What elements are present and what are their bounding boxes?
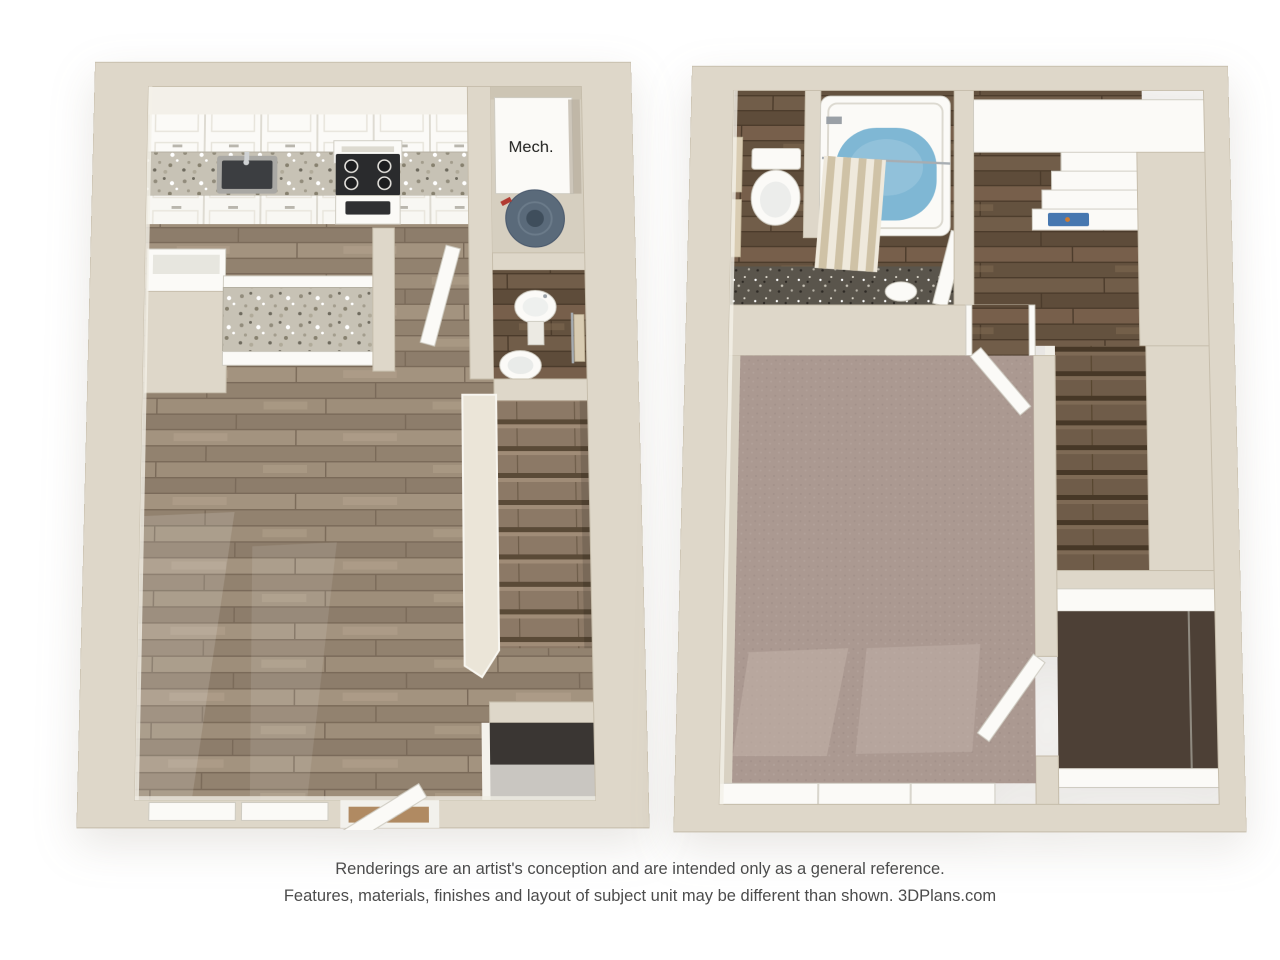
stair-guard-wall [462,395,499,677]
south-baseboard [135,796,596,800]
towel-bar [572,313,573,364]
pedestal-sink-stem [528,321,544,344]
door-jamb [1029,305,1035,356]
bedroom-doorway [970,305,1029,356]
mechanical-closet: Mech. [491,86,585,252]
pantry-wall-block [145,291,228,392]
second-floor-plan-rendering [673,64,1246,834]
mech-cabinet-shadow [568,99,581,193]
island-edge [223,276,374,288]
window-light-patch [856,644,981,754]
utility-column-wall [467,86,494,379]
closet-bottom-shelf [1058,769,1218,788]
staircase-down [1045,346,1214,571]
upper-cabinet-soffit [148,86,468,114]
mech-bath-divider-wall [492,253,585,270]
kitchen [146,86,469,224]
sink-faucet [244,152,249,160]
stair-closet-divider [1047,571,1215,589]
staircase [462,395,593,677]
upper-cabinets [147,114,468,152]
kitchen-island-granite-top [223,287,375,351]
door-jamb [966,305,972,356]
tub-faucet [826,117,842,124]
bedroom-east-wall-lower [1036,756,1059,804]
entry-closet-front [490,765,595,801]
disclaimer-line1: Renderings are an artist's conception an… [0,856,1280,883]
bedroom-east-wall [1033,356,1057,657]
burner [345,160,358,172]
bathroom-tile-band [730,266,955,305]
towel [574,315,585,362]
bathroom-east-wall [954,90,974,332]
window [241,802,328,820]
disclaimer: Renderings are an artist's conception an… [0,856,1280,910]
oven-window [345,201,390,214]
island-front-face [222,352,375,366]
toilet-upstairs [751,148,801,225]
mech-room-label: Mech. [508,138,553,156]
closet-shelf [1057,589,1215,611]
toilet-tank [752,148,801,169]
second-floor-plan [682,48,1238,829]
toilet-seat [508,356,534,374]
window [149,802,236,820]
entry-closet-wall [489,702,593,723]
stair-treads [1055,346,1150,571]
bath-rug [885,282,917,301]
bathroom [718,90,966,306]
disclaimer-line2: Features, materials, finishes and layout… [0,883,1280,910]
laundry-bin-interior [153,255,220,274]
bedroom-window [719,783,995,804]
lower-cabinets [146,196,469,225]
island-wall-stub [373,228,395,371]
bath-stair-divider-wall [494,379,588,401]
range [336,154,401,224]
stair-side-wall [1146,346,1214,571]
first-floor-plan: Mech. [85,44,641,825]
cooktop [336,154,400,196]
burner [378,160,391,172]
northeast-wall-mass [1137,152,1209,346]
first-floor-plan-rendering: Mech. [76,60,649,830]
storage-bin-label [1065,217,1070,222]
bedroom-closet [1057,589,1219,788]
entry-closet-jamb [482,723,491,803]
entry-closet [481,702,595,803]
burner [345,177,358,189]
closet-top-shelf [974,100,1205,152]
stair-treads [496,401,592,649]
shower-curtain [815,156,886,272]
granite-countertop [146,152,468,196]
tub-partition-wall [803,90,821,237]
range-hood-vent [342,146,394,152]
bedroom [719,348,1046,805]
entry-closet-interior [490,723,595,765]
closet-carpet-floor [1057,611,1218,768]
burner [378,177,391,189]
